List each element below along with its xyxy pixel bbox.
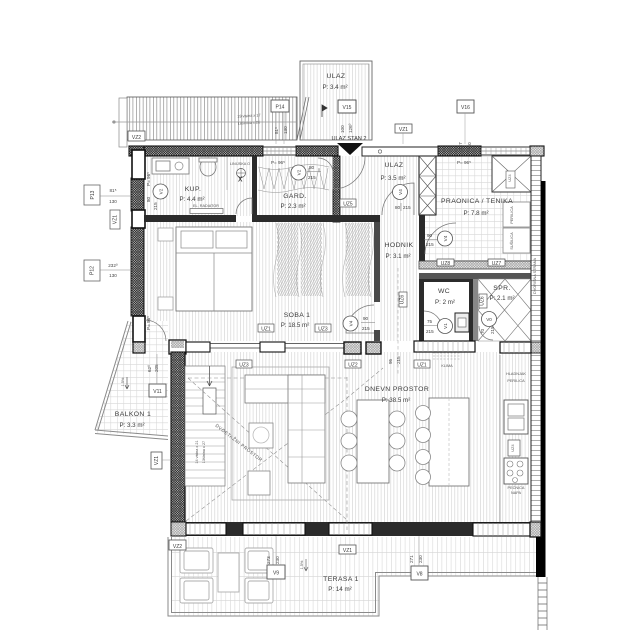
svg-text:UZ1: UZ1 xyxy=(261,327,271,333)
svg-text:UZ4: UZ4 xyxy=(511,444,515,451)
svg-text:137: 137 xyxy=(458,142,463,150)
svg-text:VZ1: VZ1 xyxy=(113,215,119,224)
svg-text:100: 100 xyxy=(340,125,345,133)
svg-text:P: 3.4 m²: P: 3.4 m² xyxy=(322,84,347,91)
svg-text:230: 230 xyxy=(418,555,423,563)
svg-text:V4: V4 xyxy=(349,320,354,326)
svg-text:DNEVN PROSTOR: DNEVN PROSTOR xyxy=(365,386,429,393)
svg-text:PERILICA: PERILICA xyxy=(507,379,525,383)
svg-text:VZ2: VZ2 xyxy=(132,135,141,141)
svg-text:70: 70 xyxy=(480,328,485,334)
svg-text:V11: V11 xyxy=(153,389,162,395)
svg-text:ULAZ STAN 2: ULAZ STAN 2 xyxy=(331,136,366,142)
svg-text:VZ1: VZ1 xyxy=(399,127,408,133)
svg-text:P: 2.3 m²: P: 2.3 m² xyxy=(280,203,305,210)
svg-text:VZ2: VZ2 xyxy=(173,544,182,550)
svg-text:LINIJSKA O: LINIJSKA O xyxy=(230,162,250,166)
svg-text:UZ1: UZ1 xyxy=(417,363,427,369)
svg-text:81⁵: 81⁵ xyxy=(109,188,116,193)
svg-text:V1: V1 xyxy=(443,323,448,329)
svg-text:V0: V0 xyxy=(486,317,492,322)
svg-text:215: 215 xyxy=(396,356,401,364)
svg-text:130: 130 xyxy=(467,142,472,150)
svg-text:273: 273 xyxy=(266,556,271,564)
svg-text:P: 18.5 m²: P: 18.5 m² xyxy=(281,322,310,329)
svg-text:UZ4: UZ4 xyxy=(508,174,512,181)
svg-text:P: 2.1 m²: P: 2.1 m² xyxy=(489,295,514,302)
svg-text:HODNIK: HODNIK xyxy=(385,242,414,249)
svg-text:V16: V16 xyxy=(461,105,470,111)
svg-text:BALKON 1: BALKON 1 xyxy=(115,411,151,418)
svg-text:UZ2: UZ2 xyxy=(348,363,358,369)
svg-text:95: 95 xyxy=(388,358,393,364)
svg-text:126⁰: 126⁰ xyxy=(348,123,353,133)
svg-text:P12: P12 xyxy=(90,266,96,275)
svg-text:90: 90 xyxy=(363,316,369,321)
svg-text:P= 96⁵: P= 96⁵ xyxy=(271,160,285,165)
svg-text:P= 96⁵: P= 96⁵ xyxy=(457,160,471,165)
svg-text:GARD.: GARD. xyxy=(283,193,307,200)
svg-text:P14: P14 xyxy=(276,105,285,111)
svg-text:NAPA: NAPA xyxy=(511,491,522,495)
svg-text:90: 90 xyxy=(427,233,433,238)
svg-text:DVORIŠNA STRANA: DVORIŠNA STRANA xyxy=(532,257,537,294)
svg-text:P: 2 m²: P: 2 m² xyxy=(435,299,455,306)
svg-text:WC: WC xyxy=(438,288,450,295)
svg-text:UZ3: UZ3 xyxy=(239,363,249,369)
svg-text:80: 80 xyxy=(146,196,151,202)
svg-text:215: 215 xyxy=(403,205,411,210)
svg-text:VZ1: VZ1 xyxy=(154,456,160,465)
svg-text:P: 3.3 m²: P: 3.3 m² xyxy=(119,422,144,429)
svg-text:215: 215 xyxy=(362,326,370,331)
svg-text:130: 130 xyxy=(283,126,288,134)
svg-text:230: 230 xyxy=(275,556,280,564)
svg-text:V15: V15 xyxy=(343,105,352,111)
svg-text:P13: P13 xyxy=(90,190,96,199)
svg-text:HLADNJAK: HLADNJAK xyxy=(506,372,526,376)
svg-text:215: 215 xyxy=(308,175,316,180)
svg-text:P= 96⁵: P= 96⁵ xyxy=(146,172,151,186)
svg-text:VZ1: VZ1 xyxy=(343,548,352,554)
svg-text:V4: V4 xyxy=(398,189,403,195)
svg-text:V2: V2 xyxy=(297,169,302,175)
svg-text:KLIMA: KLIMA xyxy=(441,364,453,368)
svg-text:75: 75 xyxy=(427,319,433,324)
svg-text:UZ8: UZ8 xyxy=(441,261,451,267)
svg-text:215: 215 xyxy=(490,326,495,334)
svg-text:P: 3.1 m²: P: 3.1 m² xyxy=(385,253,410,260)
svg-text:V2: V2 xyxy=(159,188,164,194)
svg-text:80: 80 xyxy=(309,165,315,170)
svg-text:SPR.: SPR. xyxy=(493,285,510,292)
svg-text:UZ7: UZ7 xyxy=(492,261,502,267)
svg-text:SOBA 1: SOBA 1 xyxy=(284,312,311,319)
svg-text:UZ6: UZ6 xyxy=(480,296,486,306)
svg-text:PERILICA: PERILICA xyxy=(510,206,514,224)
svg-text:271: 271 xyxy=(409,555,414,563)
svg-text:P: 7.8 m²: P: 7.8 m² xyxy=(463,210,488,217)
svg-text:130: 130 xyxy=(109,199,117,204)
svg-text:215: 215 xyxy=(153,202,158,210)
svg-text:PRAONICA / TENIKA: PRAONICA / TENIKA xyxy=(441,198,513,205)
svg-text:215: 215 xyxy=(426,242,434,247)
svg-text:1.5%: 1.5% xyxy=(300,560,304,569)
svg-text:UZ3: UZ3 xyxy=(318,327,328,333)
svg-text:80: 80 xyxy=(395,205,401,210)
svg-text:EL. RADIATOR: EL. RADIATOR xyxy=(193,204,219,208)
svg-text:P: 4.4 m²: P: 4.4 m² xyxy=(179,196,204,203)
svg-text:215: 215 xyxy=(426,329,434,334)
svg-text:TERASA 1: TERASA 1 xyxy=(323,576,359,583)
svg-text:ULAZ: ULAZ xyxy=(327,73,346,80)
svg-text:PEĆNICA: PEĆNICA xyxy=(508,485,525,490)
svg-text:V9: V9 xyxy=(273,571,279,577)
svg-text:62⁰: 62⁰ xyxy=(147,365,152,372)
svg-text:SUŠILICA: SUŠILICA xyxy=(509,232,514,250)
svg-text:205: 205 xyxy=(154,364,159,372)
svg-text:13šinina x 27: 13šinina x 27 xyxy=(202,441,206,463)
svg-text:UZ5: UZ5 xyxy=(343,202,353,208)
svg-text:P: 14 m²: P: 14 m² xyxy=(328,586,351,593)
svg-text:14 visina x 21: 14 visina x 21 xyxy=(195,440,199,463)
svg-text:P= 96⁵: P= 96⁵ xyxy=(146,316,151,330)
svg-text:V8: V8 xyxy=(416,572,422,578)
svg-text:KUP.: KUP. xyxy=(185,186,202,193)
svg-text:232⁰: 232⁰ xyxy=(108,263,118,268)
svg-text:1.5%: 1.5% xyxy=(121,377,125,386)
svg-text:P: 38.5 m²: P: 38.5 m² xyxy=(382,397,411,404)
svg-text:P: 3.5 m²: P: 3.5 m² xyxy=(380,175,405,182)
svg-text:130: 130 xyxy=(109,273,117,278)
svg-text:V4: V4 xyxy=(443,235,448,241)
svg-text:UZ6: UZ6 xyxy=(400,295,406,305)
svg-text:81⁵: 81⁵ xyxy=(274,127,279,134)
svg-text:ULAZ: ULAZ xyxy=(385,162,404,169)
